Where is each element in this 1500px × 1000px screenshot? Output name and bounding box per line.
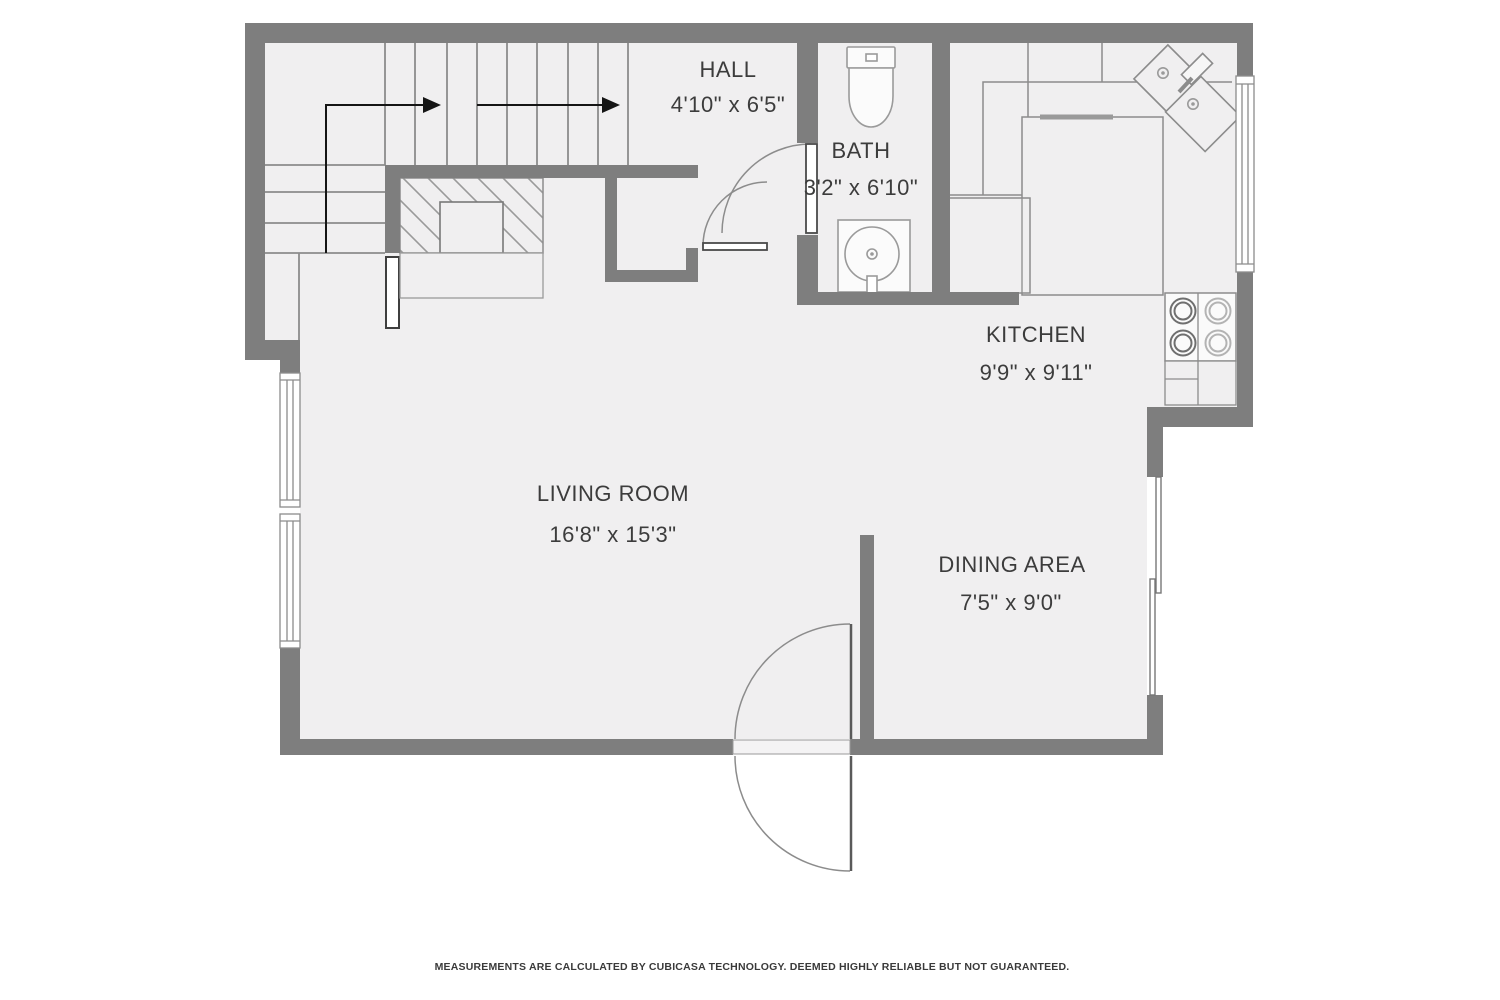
storage-shelf — [400, 253, 543, 298]
under-stair-storage — [400, 178, 543, 298]
measurement-disclaimer: MEASUREMENTS ARE CALCULATED BY CUBICASA … — [435, 961, 1070, 973]
room-label-hall: HALL — [699, 57, 756, 82]
kitchen-window — [1236, 76, 1254, 272]
bathroom-sink — [838, 220, 910, 294]
dining-sliding-door — [1147, 477, 1163, 695]
stair-door-leaf — [386, 257, 399, 328]
stove-4-burner — [1165, 293, 1236, 361]
water-heater — [440, 202, 503, 253]
counter-below-stove — [1165, 361, 1236, 405]
toilet — [847, 47, 895, 127]
room-label-living-room: LIVING ROOM — [537, 481, 689, 506]
room-label-kitchen: KITCHEN — [986, 322, 1086, 347]
floor-plan-drawing: HALL 4'10" x 6'5" BATH 3'2" x 6'10" KITC… — [0, 0, 1500, 1000]
refrigerator — [948, 198, 1030, 293]
room-label-bath: BATH — [831, 138, 890, 163]
room-dimensions-dining-area: 7'5" x 9'0" — [960, 590, 1062, 615]
room-dimensions-living-room: 16'8" x 15'3" — [549, 522, 676, 547]
floor-plan-canvas: HALL 4'10" x 6'5" BATH 3'2" x 6'10" KITC… — [0, 0, 1500, 1000]
room-dimensions-bath: 3'2" x 6'10" — [804, 175, 918, 200]
room-dimensions-kitchen: 9'9" x 9'11" — [980, 360, 1093, 385]
room-label-dining-area: DINING AREA — [938, 552, 1085, 577]
room-dimensions-hall: 4'10" x 6'5" — [671, 92, 785, 117]
left-wall-windows — [280, 373, 300, 648]
kitchen-peninsula — [1022, 117, 1163, 295]
